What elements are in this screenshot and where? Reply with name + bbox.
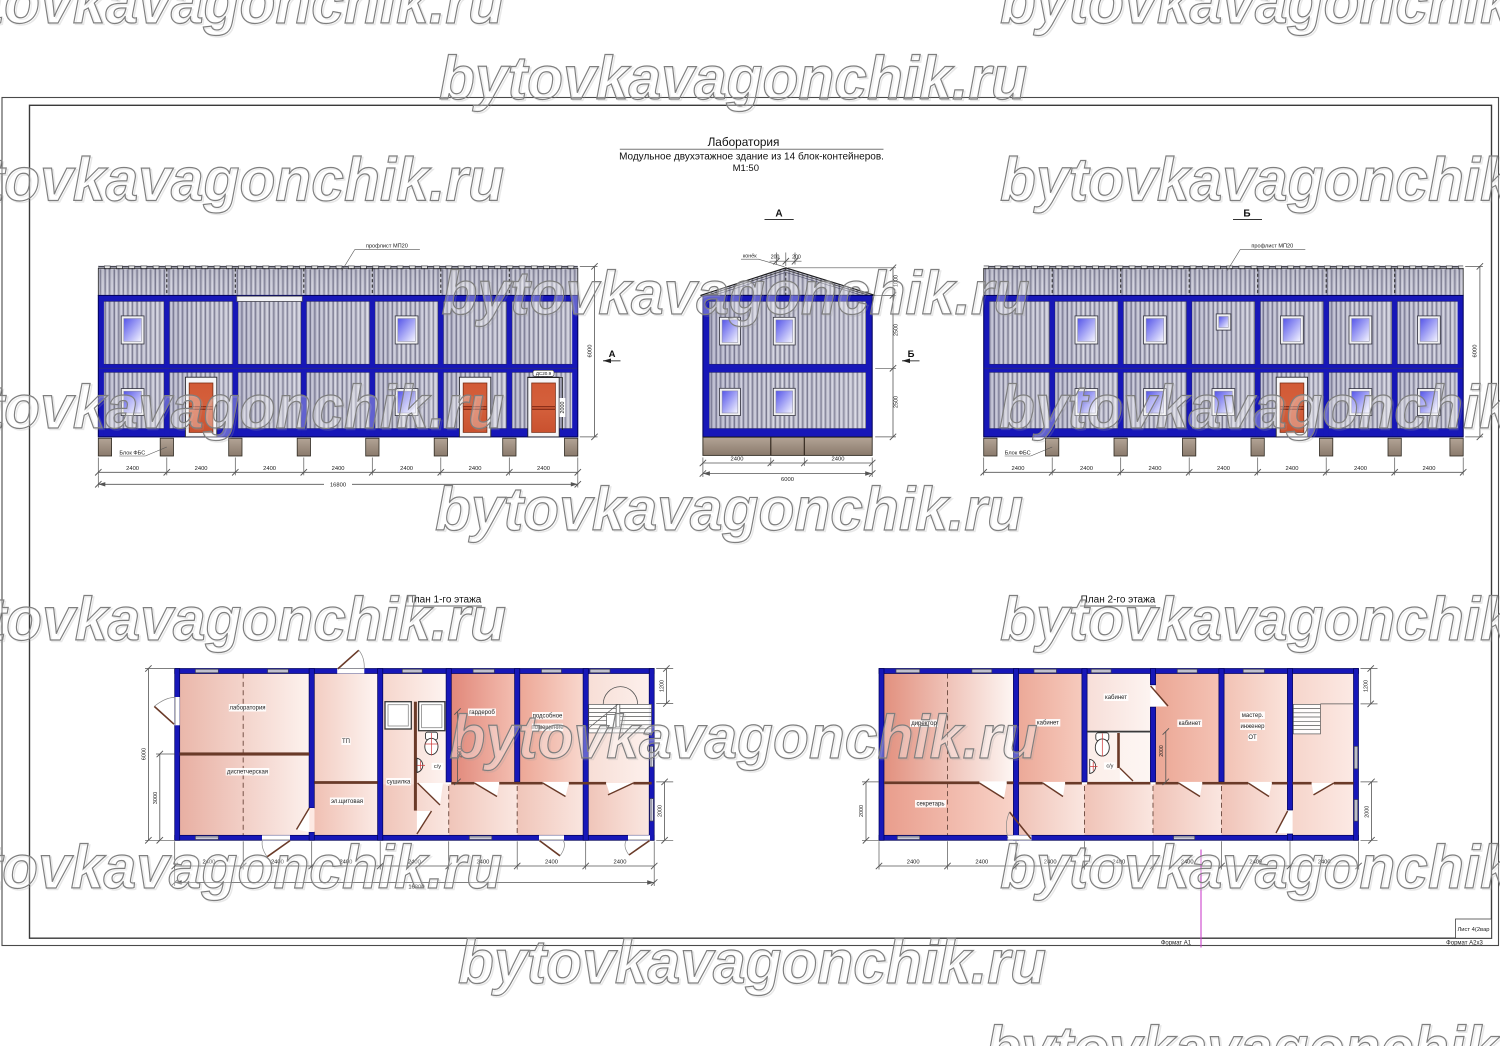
svg-text:с/у: с/у [1106,764,1113,770]
svg-text:bytovkavagonchik.ru: bytovkavagonchik.ru [435,475,1023,543]
svg-text:bytovkavagonchik.ru: bytovkavagonchik.ru [1000,0,1500,36]
svg-text:диспетчерская: диспетчерская [227,770,268,776]
svg-text:инженер: инженер [1240,724,1265,730]
svg-text:А: А [609,349,616,360]
svg-text:1200: 1200 [1364,680,1370,692]
svg-text:2400: 2400 [1080,466,1093,472]
svg-text:2400: 2400 [1012,466,1025,472]
svg-text:2400: 2400 [614,860,627,866]
svg-text:2400: 2400 [1217,466,1230,472]
svg-text:bytovkavagonchik.ru: bytovkavagonchik.ru [1000,833,1500,901]
svg-text:2400: 2400 [1149,466,1162,472]
svg-text:Блок ФБС: Блок ФБС [119,451,145,457]
svg-text:сушилка: сушилка [387,780,411,786]
svg-text:А: А [775,209,782,220]
svg-text:bytovkavagonchik.ru: bytovkavagonchik.ru [0,585,506,653]
svg-text:2000: 2000 [859,805,865,817]
svg-text:2000: 2000 [658,805,664,817]
svg-text:М1:50: М1:50 [733,163,759,174]
svg-text:профлист МП20: профлист МП20 [1251,244,1293,250]
svg-text:2000: 2000 [560,402,566,414]
svg-text:bytovkavagonchik.ru: bytovkavagonchik.ru [0,373,504,441]
svg-text:2400: 2400 [332,466,345,472]
svg-text:2000: 2000 [1159,745,1165,757]
svg-text:секретарь: секретарь [917,802,945,808]
svg-text:кабинет: кабинет [1105,695,1127,701]
svg-text:2400: 2400 [731,457,744,463]
svg-text:эл.щитовая: эл.щитовая [331,799,363,805]
svg-text:Лаборатория: Лаборатория [708,135,780,149]
svg-text:bytovkavagonchik.ru: bytovkavagonchik.ru [450,703,1038,771]
svg-text:кабинет: кабинет [1037,721,1059,727]
svg-text:3000: 3000 [153,792,159,804]
svg-text:Лист 4(2вар: Лист 4(2вар [1457,927,1489,933]
svg-text:6000: 6000 [587,345,593,358]
svg-text:ТП: ТП [342,739,350,745]
svg-text:2400: 2400 [1423,466,1436,472]
svg-text:bytovkavagonchik.ru: bytovkavagonchik.ru [0,145,504,213]
svg-text:1200: 1200 [659,680,665,692]
svg-text:2400: 2400 [195,466,208,472]
svg-text:2400: 2400 [1354,466,1367,472]
svg-text:Модульное двухэтажное здание и: Модульное двухэтажное здание из 14 блок-… [619,151,884,163]
svg-text:профлист МП20: профлист МП20 [366,244,408,250]
svg-text:Формат А2х3: Формат А2х3 [1446,941,1483,947]
svg-text:Блок ФБС: Блок ФБС [1005,451,1031,457]
svg-text:bytovkavagonchik.ru: bytovkavagonchik.ru [1000,585,1500,653]
svg-text:bytovkavagonchik.ru: bytovkavagonchik.ru [1000,145,1500,213]
svg-text:bytovkavagonchik.ru: bytovkavagonchik.ru [0,0,504,36]
svg-text:ОТ: ОТ [1248,735,1257,741]
svg-text:Формат А1: Формат А1 [1161,941,1192,947]
svg-text:2400: 2400 [126,466,139,472]
svg-text:2000: 2000 [1365,806,1371,818]
svg-text:2400: 2400 [400,466,413,472]
svg-text:bytovkavagonchik.ru: bytovkavagonchik.ru [442,259,1030,327]
svg-text:6000: 6000 [1473,345,1479,358]
svg-text:лаборатория: лаборатория [229,706,265,712]
svg-text:16800: 16800 [330,482,346,488]
svg-text:2400: 2400 [537,466,550,472]
svg-text:2400: 2400 [1286,466,1299,472]
svg-text:bytovkavagonchik.ru: bytovkavagonchik.ru [439,44,1027,112]
svg-text:6000: 6000 [141,748,147,760]
svg-text:bytovkavagonchik.ru: bytovkavagonchik.ru [0,833,502,901]
svg-text:2400: 2400 [907,860,920,866]
svg-text:bytovkavagonchik.ru: bytovkavagonchik.ru [985,1014,1500,1046]
svg-text:2400: 2400 [975,860,988,866]
svg-text:2400: 2400 [263,466,276,472]
svg-text:2400: 2400 [545,860,558,866]
svg-text:2500: 2500 [893,396,899,408]
svg-text:bytovkavagonchik.ru: bytovkavagonchik.ru [999,373,1500,441]
svg-text:bytovkavagonchik.ru: bytovkavagonchik.ru [458,928,1046,996]
svg-text:ДС20.9: ДС20.9 [536,371,552,376]
svg-text:кабинет: кабинет [1179,721,1201,727]
svg-text:мастер.: мастер. [1242,713,1264,719]
svg-text:Б: Б [908,349,915,360]
svg-text:2400: 2400 [469,466,482,472]
svg-text:с/у: с/у [434,764,441,770]
svg-text:2400: 2400 [832,457,845,463]
